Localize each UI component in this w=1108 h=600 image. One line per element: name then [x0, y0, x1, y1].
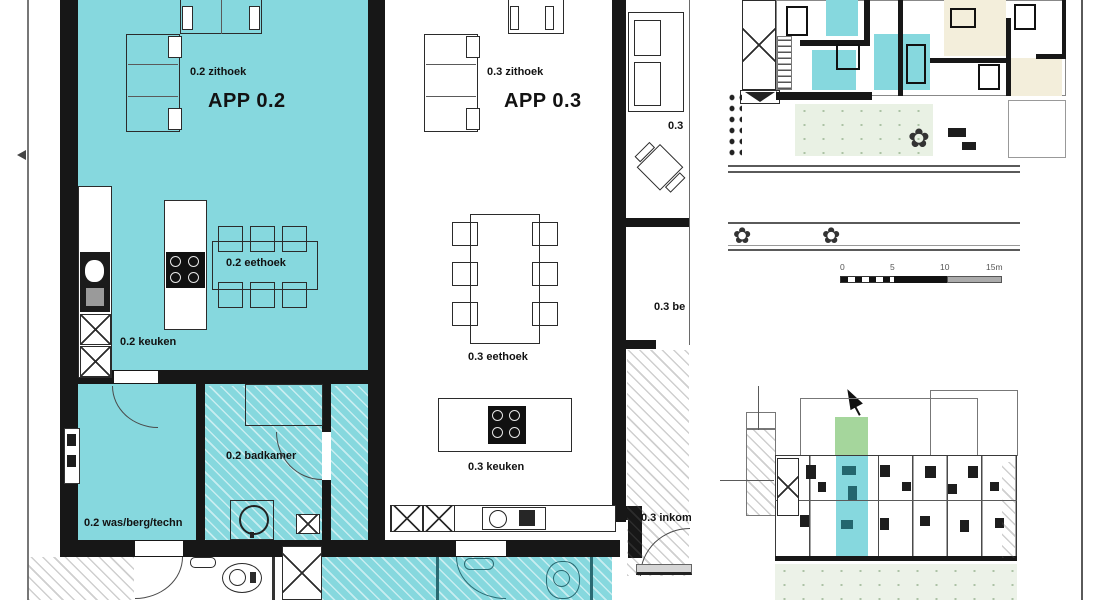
- armchair-rotated: [620, 128, 699, 207]
- scale-bar: 0 5 10 15m: [840, 262, 1006, 288]
- couch-armrest: [510, 6, 519, 30]
- site-wall: [1006, 18, 1011, 96]
- wardrobe-panel: [634, 62, 661, 106]
- wall-panel: [64, 428, 80, 484]
- site-line: [720, 480, 774, 481]
- wall: [612, 218, 690, 227]
- site-wall: [1062, 0, 1066, 58]
- shaft-box: [296, 514, 320, 534]
- dining-table: [470, 214, 540, 344]
- chair: [452, 222, 478, 246]
- site-fixture: [800, 515, 809, 527]
- room-label: 0.3 eethoek: [468, 351, 528, 363]
- scale-bar-segment: [947, 276, 1002, 283]
- room-label: 0.3 be: [654, 301, 690, 313]
- chair: [282, 226, 307, 252]
- shrub-row: [727, 92, 742, 160]
- site-fixture: [920, 516, 930, 526]
- couch-line: [221, 0, 222, 34]
- site-wall: [898, 0, 903, 96]
- site-fixture: [925, 466, 936, 478]
- sofa-armrest: [168, 36, 182, 58]
- site-wall: [864, 0, 870, 44]
- site-fixture: [841, 520, 853, 529]
- site-fixture: [968, 466, 978, 478]
- couch-armrest: [182, 6, 193, 30]
- road-line: [728, 249, 1020, 251]
- tree-icon: ✿: [822, 224, 840, 249]
- funnel-triangle: [745, 92, 775, 102]
- partition-line: [436, 557, 439, 600]
- room-label: 0.2 eethoek: [226, 257, 286, 269]
- kitchen-sink: [80, 252, 110, 312]
- shaft-box: [282, 546, 322, 600]
- staircase: [777, 36, 792, 90]
- partition-line: [590, 557, 593, 600]
- sink-basin: [85, 260, 104, 282]
- chair: [532, 262, 558, 286]
- door-arc: [135, 557, 183, 599]
- sheet-right-edge: [1081, 0, 1083, 600]
- site-fixture: [818, 482, 826, 492]
- panel-unit: [67, 455, 76, 467]
- corridor-hatch: [28, 557, 134, 600]
- chair: [250, 282, 275, 308]
- scale-tick-label: 5: [890, 262, 895, 272]
- tree-icon: ✿: [733, 224, 751, 249]
- counter-sink: [482, 507, 546, 530]
- sofa-line: [426, 96, 476, 97]
- chair: [250, 226, 275, 252]
- sofa-line: [128, 96, 178, 97]
- stove: [488, 406, 526, 444]
- site-fixture: [960, 520, 969, 532]
- appliance-box: [80, 346, 111, 377]
- scale-bar-segment: [840, 276, 896, 283]
- left-arrow-icon: [17, 150, 26, 160]
- site-line: [758, 386, 759, 430]
- tree-icon: ✿: [908, 124, 930, 154]
- sheet-left-edge: [27, 0, 29, 600]
- site-fixture: [842, 466, 856, 475]
- room-label: 0.3 zithoek: [487, 66, 543, 78]
- toilet: [222, 563, 262, 593]
- wall: [612, 340, 656, 349]
- wall: [196, 384, 205, 540]
- chair: [218, 226, 243, 252]
- site-cream-room: [1010, 58, 1062, 96]
- site-fixture: [880, 465, 890, 477]
- site-furniture: [786, 6, 808, 36]
- scale-tick-label: 0: [840, 262, 845, 272]
- site-furniture: [978, 64, 1000, 90]
- site-furniture: [1014, 4, 1036, 30]
- chair: [282, 282, 307, 308]
- door-opening: [456, 541, 506, 556]
- site-fixture: [902, 482, 911, 491]
- apartment-title: APP 0.3: [504, 90, 582, 113]
- glazing-panel: [742, 0, 776, 90]
- burner: [509, 427, 520, 438]
- door-opening: [135, 541, 183, 556]
- room-label: 0.2 zithoek: [190, 66, 246, 78]
- appliance-box: [423, 505, 455, 532]
- stove: [166, 252, 205, 288]
- road-line: [728, 165, 1020, 167]
- toilet-tank: [250, 572, 256, 583]
- room-label: 0.2 was/berg/techn: [84, 517, 182, 529]
- site-wall: [1036, 54, 1066, 59]
- bench: [948, 128, 966, 137]
- door-opening: [114, 371, 158, 383]
- site-fixture: [806, 465, 816, 479]
- burner: [492, 427, 503, 438]
- panel-unit: [67, 434, 76, 446]
- basin-tap: [250, 532, 254, 538]
- chair: [532, 302, 558, 326]
- appliance-box: [391, 505, 423, 532]
- toilet-bowl: [553, 570, 570, 587]
- site-outline: [930, 390, 1018, 456]
- scale-tick-label: 15m: [986, 262, 1003, 272]
- chair: [452, 262, 478, 286]
- garden-dotted: [775, 564, 1017, 600]
- door-opening: [322, 432, 331, 480]
- burner: [170, 256, 181, 267]
- sofa-line: [426, 64, 476, 65]
- sink-bowl: [489, 510, 507, 528]
- wardrobe: [628, 12, 684, 112]
- road-line: [728, 171, 1020, 173]
- app02-shaft-strip-hatch: [330, 386, 368, 540]
- road-line: [728, 222, 1020, 224]
- room-label: 0.3 keuken: [468, 461, 524, 473]
- sofa-armrest: [168, 108, 182, 130]
- courtyard: [1008, 100, 1066, 158]
- couch-armrest: [249, 6, 260, 30]
- toilet-bowl: [229, 569, 246, 586]
- site-wall: [776, 92, 872, 100]
- site-hatch-edge: [1002, 462, 1015, 558]
- room-edge-line: [272, 557, 275, 600]
- burner: [188, 256, 199, 267]
- wall: [612, 0, 626, 522]
- apartment-title: APP 0.2: [208, 90, 286, 113]
- chair: [452, 302, 478, 326]
- room-label: 0.3: [668, 120, 683, 132]
- glazing-panel: [777, 458, 799, 516]
- site-fixture: [990, 482, 999, 491]
- couch-armrest: [545, 6, 554, 30]
- appliance-box: [80, 314, 111, 345]
- room-label: 0.3 inkom: [641, 512, 691, 524]
- burner: [170, 272, 181, 283]
- cistern: [190, 557, 216, 568]
- bench: [962, 142, 976, 150]
- sofa-armrest: [466, 36, 480, 58]
- basin-bowl: [239, 505, 269, 535]
- toilet: [546, 561, 580, 599]
- chair: [532, 222, 558, 246]
- sofa-line: [128, 64, 178, 65]
- wardrobe-panel: [634, 20, 661, 56]
- sink-drainer: [519, 510, 535, 526]
- site-fixture: [880, 518, 889, 530]
- site-wall: [775, 556, 1017, 561]
- floorplan-sheet: 0.2 zithoek APP 0.2 0.2 eethoek 0.2 keuk…: [0, 0, 1108, 600]
- cistern: [464, 558, 494, 570]
- site-fixture: [948, 484, 957, 494]
- site-furniture: [836, 44, 860, 70]
- burner: [492, 410, 503, 421]
- site-fixture: [848, 486, 857, 500]
- washbasin: [230, 500, 274, 540]
- site-highlight-room: [826, 0, 858, 36]
- unit-row-line: [775, 500, 1017, 501]
- site-furniture: [906, 44, 926, 84]
- site-hatch-strip: [746, 428, 776, 516]
- site-furniture: [950, 8, 976, 28]
- scale-tick-label: 10: [940, 262, 949, 272]
- doormat: [636, 564, 692, 575]
- burner: [188, 272, 199, 283]
- site-wall: [930, 58, 1010, 63]
- burner: [509, 410, 520, 421]
- sofa-armrest: [466, 108, 480, 130]
- chair: [218, 282, 243, 308]
- room-label: 0.2 keuken: [120, 336, 176, 348]
- funnel-symbol: [740, 90, 780, 104]
- garden-highlight: [835, 417, 868, 455]
- road-line: [728, 245, 1020, 246]
- scale-bar-segment: [894, 276, 949, 283]
- sink-drainer: [86, 288, 104, 306]
- wall: [368, 0, 385, 557]
- shower: [245, 384, 323, 426]
